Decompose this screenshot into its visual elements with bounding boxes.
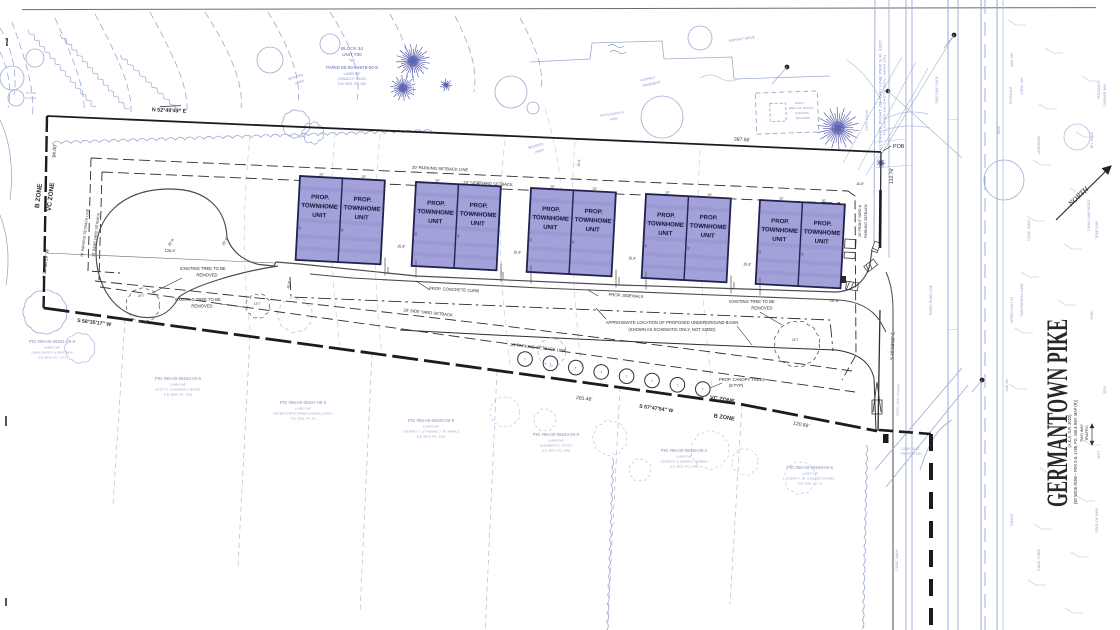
svg-text:APPROXIMATE LOCATION OF PROPOS: APPROXIMATE LOCATION OF PROPOSED UNDERGR… [606, 320, 738, 325]
svg-text:42: 42 [340, 228, 344, 232]
svg-text:PID #65-00-06643-00-6: PID #65-00-06643-00-6 [533, 432, 580, 437]
svg-text:REMOVED: REMOVED [196, 273, 217, 278]
svg-text:EXISTING TREE TO BE: EXISTING TREE TO BE [729, 299, 775, 304]
svg-text:42: 42 [529, 238, 533, 242]
svg-text:TWO PARKING LANE: TWO PARKING LANE [1020, 282, 1024, 316]
svg-text:15.8′: 15.8′ [856, 182, 864, 186]
svg-text:SAN MH: SAN MH [1005, 378, 1009, 392]
svg-text:EXIST. R.O.W.: EXIST. R.O.W. [865, 109, 869, 130]
svg-text:HOLDING: HOLDING [795, 111, 809, 115]
svg-text:25′ R: 25′ R [830, 299, 839, 304]
svg-text:MAYER CHRISTOPHER & MODEL ZOE: MAYER CHRISTOPHER & MODEL ZOE E [274, 412, 333, 416]
svg-text:PARKING SETBACK: PARKING SETBACK [864, 204, 868, 238]
svg-text:PID #65-00-06640-00-8: PID #65-00-06640-00-8 [408, 418, 455, 423]
svg-text:GERMANTOWN PIKE: GERMANTOWN PIKE [1041, 319, 1074, 507]
svg-text:T: T [600, 370, 602, 374]
svg-text:LANDS N/F: LANDS N/F [344, 72, 361, 76]
svg-text:EXIST.: EXIST. [795, 101, 804, 105]
svg-text:LANDS N/F: LANDS N/F [676, 455, 692, 459]
svg-text:UNIT: UNIT [470, 221, 485, 228]
svg-text:CONC. MH: CONC. MH [1020, 77, 1024, 95]
svg-text:42: 42 [644, 244, 648, 248]
svg-text:BUILDING: BUILDING [796, 116, 811, 120]
svg-text:24′T: 24′T [138, 294, 144, 298]
svg-text:POB: POB [893, 144, 905, 150]
svg-text:CONC. WALK: CONC. WALK [895, 549, 899, 571]
svg-text:CONC. WALK: CONC. WALK [1027, 219, 1031, 241]
svg-text:(A.K.A. S.R. 3022): (A.K.A. S.R. 3022) [1067, 414, 1072, 447]
svg-text:PID #65-00-06634-00-6: PID #65-00-06634-00-6 [155, 376, 202, 381]
svg-text:UNIT: UNIT [585, 227, 600, 234]
svg-text:PLAN 65-00-04578 REV. MAP (R): PLAN 65-00-04578 REV. MAP (R) [883, 55, 887, 135]
svg-text:T: T [575, 366, 577, 370]
svg-text:GRASS: GRASS [1010, 513, 1014, 526]
svg-text:UNIT: UNIT [772, 237, 787, 244]
svg-text:FOUND: FOUND [26, 96, 37, 100]
svg-text:PID #65-00-06631-00-8: PID #65-00-06631-00-8 [29, 339, 76, 344]
svg-text:T: T [549, 362, 551, 366]
svg-text:BLOCK 34: BLOCK 34 [341, 46, 363, 51]
svg-text:PROP.: PROP. [427, 201, 446, 208]
svg-text:D.B. 5842, PG. 37: D.B. 5842, PG. 37 [797, 482, 822, 486]
svg-text:TREE LINE: TREE LINE [1095, 221, 1099, 239]
svg-text:PID #65-00-06646-00-2: PID #65-00-06646-00-2 [661, 448, 708, 453]
svg-text:20′: 20′ [319, 173, 324, 177]
svg-text:CURB INLET: CURB INLET [901, 447, 920, 451]
svg-text:T: T [676, 383, 678, 387]
svg-text:42: 42 [298, 226, 302, 230]
svg-text:42: 42 [800, 252, 804, 256]
svg-text:UNIT: UNIT [428, 219, 443, 226]
svg-text:20′: 20′ [592, 187, 597, 191]
svg-text:BIT. WALK: BIT. WALK [1090, 131, 1094, 148]
svg-text:EXISTING TREE TO BE: EXISTING TREE TO BE [175, 297, 221, 302]
svg-text:42: 42 [686, 246, 690, 250]
svg-text:D.B. 5874, PG. 2325: D.B. 5874, PG. 2325 [417, 435, 446, 439]
svg-text:T: T [651, 379, 653, 383]
svg-text:TRAFFIC: TRAFFIC [1085, 425, 1089, 441]
svg-text:PROP.: PROP. [353, 197, 372, 204]
svg-text:OHW: OHW [997, 125, 1001, 134]
svg-text:PROP.: PROP. [584, 209, 603, 216]
svg-text:20′: 20′ [707, 193, 712, 197]
svg-text:UNIT: UNIT [312, 213, 327, 220]
svg-text:LANDS N/F: LANDS N/F [548, 439, 564, 443]
svg-text:S 40°03′02″ E: S 40°03′02″ E [890, 332, 896, 361]
svg-text:D.B. 5893, PG. 1960: D.B. 5893, PG. 1960 [542, 449, 571, 453]
svg-text:ELIZABETH C. DOYET: ELIZABETH C. DOYET [540, 444, 572, 448]
svg-text:126.8′: 126.8′ [165, 248, 176, 253]
svg-text:REMOVED: REMOVED [751, 306, 772, 311]
svg-text:PROP. CANOPY TREES: PROP. CANOPY TREES [719, 377, 766, 382]
svg-text:UNIT: UNIT [700, 233, 715, 240]
svg-text:15.8′: 15.8′ [743, 262, 752, 266]
svg-text:PARID 65-00-04578-00-8: PARID 65-00-04578-00-8 [326, 65, 378, 70]
svg-text:PAVED ROAD LINE: PAVED ROAD LINE [929, 284, 933, 315]
svg-text:EXISTING TREE TO BE: EXISTING TREE TO BE [180, 266, 226, 271]
svg-text:UNIT #30: UNIT #30 [342, 52, 362, 57]
svg-text:EDGE OF PAVE: EDGE OF PAVE [1095, 507, 1099, 532]
svg-text:PROP.: PROP. [771, 219, 790, 226]
svg-text:(8 TYP): (8 TYP) [729, 383, 744, 388]
svg-text:PROP.: PROP. [813, 221, 832, 228]
svg-text:LANDS N/F: LANDS N/F [44, 346, 60, 350]
svg-text:PLEASANT: PLEASANT [1097, 81, 1101, 99]
svg-text:UNIT: UNIT [814, 239, 829, 246]
svg-text:UNIT: UNIT [658, 231, 673, 238]
svg-text:D.B. 5898, PG. 1922: D.B. 5898, PG. 1922 [164, 393, 193, 397]
svg-text:132.76′: 132.76′ [889, 168, 896, 184]
svg-text:D.B. 5901, PG. 91: D.B. 5901, PG. 91 [290, 417, 315, 421]
svg-text:D.B. 5931, PG. 283: D.B. 5931, PG. 283 [338, 82, 366, 86]
svg-text:PROTECTION: PROTECTION [901, 452, 923, 456]
svg-text:14′T: 14′T [254, 302, 260, 306]
svg-text:DONALD F. ALLEN: DONALD F. ALLEN [338, 77, 366, 81]
svg-text:PROP.: PROP. [311, 195, 330, 202]
svg-text:UNIT: UNIT [354, 215, 369, 222]
svg-text:PROP.: PROP. [699, 215, 718, 222]
svg-text:42: 42 [414, 232, 418, 236]
svg-text:"A": "A" [349, 58, 356, 63]
svg-text:LANDS N/F: LANDS N/F [170, 383, 186, 387]
svg-text:15.8′: 15.8′ [513, 250, 522, 254]
svg-text:T: T [626, 375, 628, 379]
svg-text:T: T [702, 388, 704, 392]
svg-text:LANDS N/F: LANDS N/F [423, 425, 439, 429]
svg-text:397.56′: 397.56′ [734, 137, 751, 144]
svg-text:42: 42 [758, 250, 762, 254]
svg-text:20′: 20′ [665, 191, 670, 195]
svg-text:10′ FRONT YARD &: 10′ FRONT YARD & [858, 204, 862, 237]
svg-text:PID #65-00-06637-00-3: PID #65-00-06637-00-3 [280, 400, 327, 405]
svg-text:PROP.: PROP. [469, 203, 488, 210]
svg-text:SCOTT J. & SANDRA T. MAYER: SCOTT J. & SANDRA T. MAYER [155, 388, 201, 392]
svg-text:20′: 20′ [779, 197, 784, 201]
svg-text:T: T [524, 358, 526, 362]
svg-text:94.00′: 94.00′ [52, 144, 59, 158]
svg-text:20′: 20′ [550, 185, 555, 189]
svg-text:CONC. CURB: CONC. CURB [1037, 549, 1041, 571]
svg-text:CHAIN LINK FENCE: CHAIN LINK FENCE [1087, 199, 1091, 231]
svg-text:20′: 20′ [821, 199, 826, 203]
svg-text:15.8′: 15.8′ [628, 256, 637, 260]
svg-text:VENT: VENT [1097, 450, 1101, 459]
svg-text:LANDS N/F: LANDS N/F [295, 407, 311, 411]
svg-text:SHED: SHED [1090, 310, 1094, 320]
svg-text:SIGN: SIGN [1103, 385, 1107, 394]
svg-text:42: 42 [456, 234, 460, 238]
svg-text:UNIT: UNIT [543, 225, 558, 232]
svg-text:TWO WAY: TWO WAY [1080, 423, 1084, 442]
svg-text:STONE: STONE [26, 91, 36, 95]
svg-text:34′T: 34′T [792, 338, 798, 342]
svg-text:42: 42 [571, 240, 575, 244]
svg-text:PLEASANT: PLEASANT [1009, 86, 1013, 104]
svg-text:GODFREY J. & THOMAS J. JR. MIH: GODFREY J. & THOMAS J. JR. MIHALO [403, 430, 461, 434]
svg-text:PROP.: PROP. [657, 213, 676, 220]
svg-text:PROP.: PROP. [542, 207, 561, 214]
svg-text:D.B. 5832, PG. 1459: D.B. 5832, PG. 1459 [670, 465, 699, 469]
svg-text:SAN. MH: SAN. MH [1010, 52, 1014, 67]
svg-text:TWO FOOT WIDE: TWO FOOT WIDE [935, 75, 939, 104]
svg-text:20′: 20′ [361, 175, 366, 179]
svg-text:SPEED LIMIT 35: SPEED LIMIT 35 [1010, 297, 1014, 323]
svg-text:JOSEPH J. JR. & EILEEN CONNEY: JOSEPH J. JR. & EILEEN CONNEY [785, 477, 835, 481]
svg-text:20′: 20′ [435, 179, 440, 183]
svg-text:D.B. 5935, PG. 2371: D.B. 5935, PG. 2371 [38, 356, 67, 360]
svg-text:35.8′: 35.8′ [577, 159, 582, 167]
svg-text:CORNER WAY: CORNER WAY [1103, 83, 1107, 107]
svg-text:(50′ WIDE ROW – PER D.B. 4788,: (50′ WIDE ROW – PER D.B. 4788, PG. 438 &… [1073, 399, 1078, 504]
svg-text:JOSEPH F. & EILEEN A. MARINO: JOSEPH F. & EILEEN A. MARINO [660, 460, 708, 464]
svg-text:15.8′: 15.8′ [397, 244, 406, 248]
svg-text:(SHOWN AS SCHEMATIC ONLY, NOT: (SHOWN AS SCHEMATIC ONLY, NOT SIZED) [628, 327, 716, 332]
svg-text:WELL ST. SCOUT: WELL ST. SCOUT [789, 106, 814, 110]
svg-text:LANDMARK: LANDMARK [1037, 135, 1041, 155]
svg-text:REMOVED: REMOVED [191, 304, 212, 309]
